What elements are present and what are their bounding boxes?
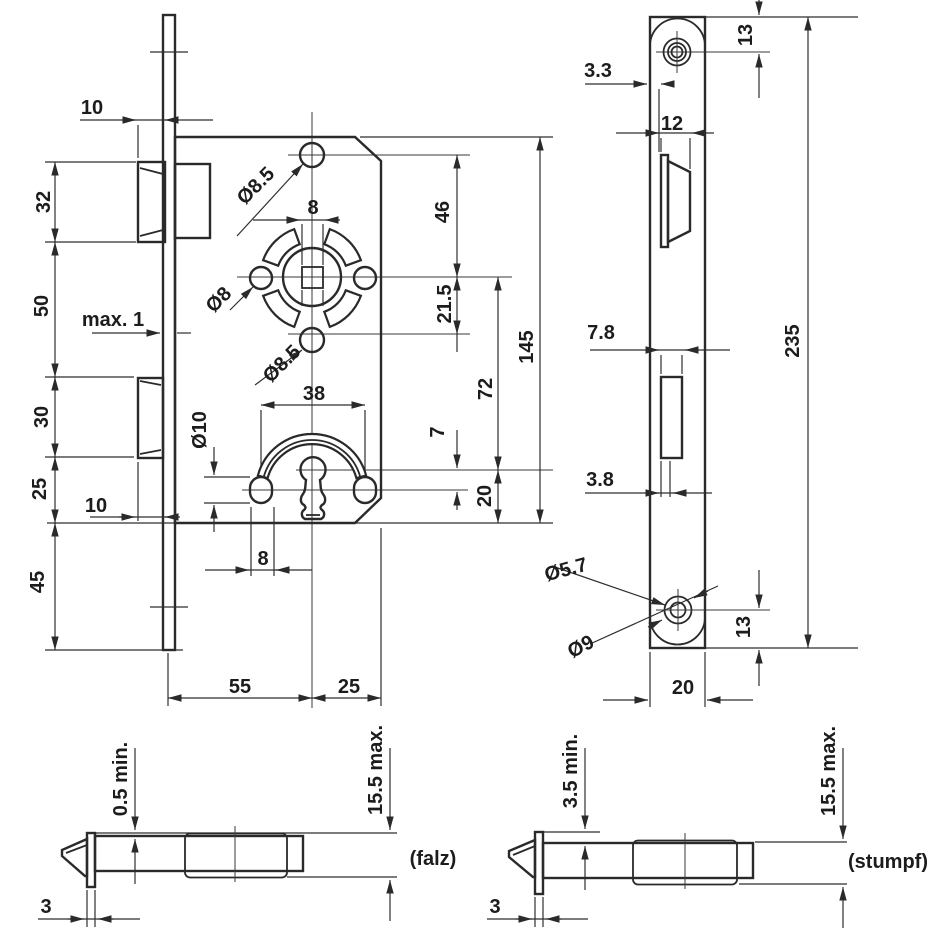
dia-label-guide-hole: Ø10 (189, 411, 211, 449)
dim-label-follower-to-keyhole: 72 (475, 378, 497, 400)
dim-label-spring-span: 38 (303, 383, 325, 405)
dim-label-stumpf-min: 3.5 min. (560, 734, 582, 808)
dim-label-plate-length: 235 (782, 324, 804, 357)
dim-label-deadbolt-height: 30 (31, 406, 53, 428)
technical-drawing-page: 10 32 50 max. 1 30 25 10 45 Ø8.5 8 Ø8 Ø8… (0, 0, 931, 940)
dim-label-case-depth: 25 (338, 676, 360, 698)
dim-label-falz-max: 15.5 max. (365, 725, 387, 815)
dim-label-top-hole-to-follower: 46 (432, 201, 454, 223)
dim-label-stumpf-max: 15.5 max. (818, 726, 840, 816)
dim-label-deadbolt-projection: 10 (85, 495, 107, 517)
dim-label-backset: 55 (229, 676, 251, 698)
dim-label-latch-projection: 10 (81, 97, 103, 119)
dim-label-spindle-square: 8 (307, 197, 318, 219)
dim-label-falz-min: 0.5 min. (110, 742, 132, 816)
dim-label-case-height: 145 (516, 330, 538, 363)
dim-label-stumpf-thickness: 3 (489, 896, 500, 918)
dim-label-deadbolt-to-bottom: 25 (29, 478, 51, 500)
dim-label-guide-width: 8 (257, 548, 268, 570)
dim-label-latch-to-deadbolt: 50 (31, 295, 53, 317)
caption-stumpf: (stumpf) (848, 851, 928, 873)
dim-label-keyhole-offset: 7 (427, 426, 449, 437)
dim-label-screw-bottom: 13 (733, 616, 755, 638)
caption-falz: (falz) (410, 848, 457, 870)
dim-label-slot-offset: 3.8 (586, 469, 614, 491)
dim-label-plate-gap: max. 1 (82, 309, 144, 331)
dim-label-plate-overhang: 45 (27, 571, 49, 593)
dim-label-latch-depth: 12 (661, 113, 683, 135)
dim-label-falz-thickness: 3 (40, 896, 51, 918)
dim-label-screw-top: 13 (735, 24, 757, 46)
dim-label-latch-height: 32 (33, 191, 55, 213)
dim-label-latch-face: 3.3 (584, 60, 612, 82)
dim-label-slot-width: 7.8 (587, 322, 615, 344)
dim-label-follower-to-lower-hole: 21.5 (434, 285, 456, 324)
dim-label-keyhole-to-bottom: 20 (474, 485, 496, 507)
dim-label-plate-width: 20 (672, 677, 694, 699)
lock-dimension-drawing: 10 32 50 max. 1 30 25 10 45 Ø8.5 8 Ø8 Ø8… (0, 0, 931, 940)
